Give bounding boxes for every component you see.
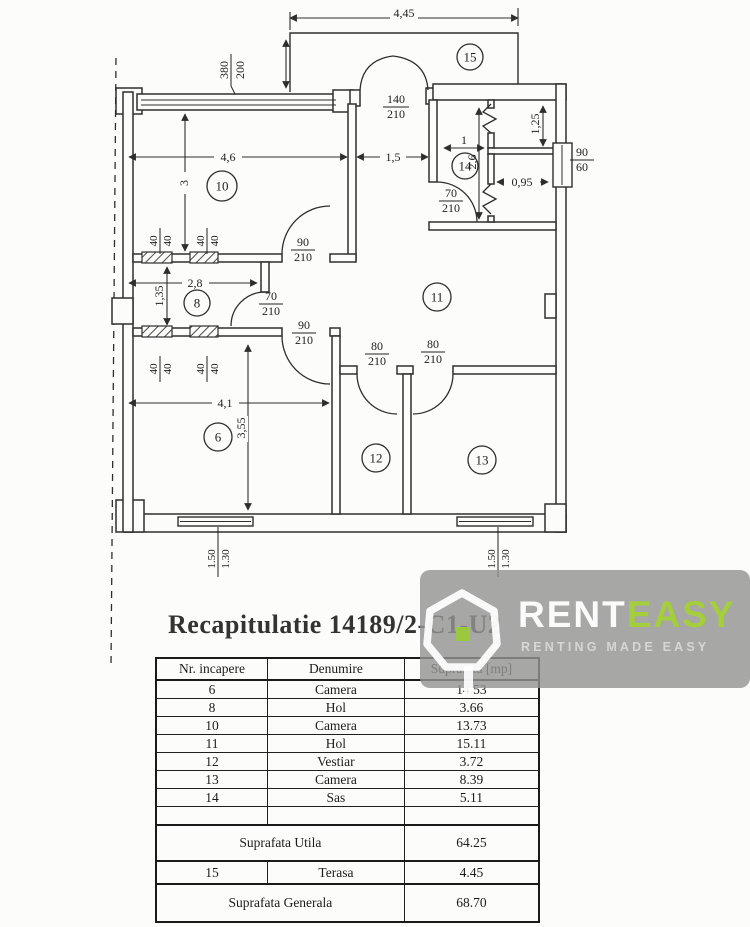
closet-door-zigzag-2 — [483, 184, 496, 214]
room-6: 6 — [215, 430, 222, 445]
cell-nr: 8 — [156, 699, 268, 717]
terasa-nr: 15 — [156, 861, 268, 884]
door14-w: 70 — [445, 186, 457, 200]
room-15: 15 — [464, 50, 477, 65]
badge-tail — [464, 666, 473, 694]
col-label: 40 — [162, 235, 174, 247]
utila-value: 64.25 — [404, 825, 539, 861]
table-row: 14 Sas 5.11 — [156, 789, 539, 807]
door13-w: 80 — [427, 337, 439, 351]
header-denumire: Denumire — [268, 658, 405, 680]
cell-area: 3.72 — [404, 753, 539, 771]
dim-hall-width: 1,5 — [386, 150, 401, 164]
brand-rent: RENT — [518, 594, 627, 635]
terrace-door-w: 140 — [387, 92, 405, 106]
brand-wordmark: RENTEASY — [518, 596, 736, 633]
room-10: 10 — [216, 179, 229, 194]
cell-nr: 13 — [156, 771, 268, 789]
cell-name: Camera — [268, 717, 405, 735]
door13-h: 210 — [424, 352, 442, 366]
col-label: 40 — [148, 235, 160, 247]
cell-name: Hol — [268, 699, 405, 717]
terrace-outline — [290, 33, 518, 92]
dim-room6-depth: 3,55 — [234, 418, 248, 439]
right-window-h: 60 — [576, 160, 588, 174]
door12-h: 210 — [368, 354, 386, 368]
door10-h: 210 — [294, 250, 312, 264]
table-row: 11 Hol 15.11 — [156, 735, 539, 753]
cell-area: 15.11 — [404, 735, 539, 753]
top-window-w: 380 — [217, 61, 231, 79]
wall-niche — [545, 294, 556, 318]
scanned-floorplan-page: 4,45 4,6 1,5 3 1 2,6 1,25 0,95 2,8 1,35 … — [0, 0, 750, 927]
room-12: 12 — [370, 451, 383, 466]
terrace-door-leaf-right — [393, 56, 428, 90]
room-14: 14 — [459, 159, 473, 174]
dim-room8-width: 2,8 — [188, 276, 203, 290]
header-nr: Nr. incapere — [156, 658, 268, 680]
door6-w: 90 — [298, 318, 310, 332]
cell-name: Hol — [268, 735, 405, 753]
dim-room14-width: 1 — [461, 133, 467, 147]
door8-h: 210 — [262, 304, 280, 318]
dim-niche-width: 0,95 — [512, 175, 533, 189]
col-label: 40 — [162, 363, 174, 375]
terasa-row: 15 Terasa 4.45 — [156, 861, 539, 884]
door10-w: 90 — [297, 235, 309, 249]
wall-top-right — [433, 84, 566, 100]
table-row: 12 Vestiar 3.72 — [156, 753, 539, 771]
renteasy-watermark: RENTEASY RENTING MADE EASY — [420, 570, 750, 688]
cell-nr: 10 — [156, 717, 268, 735]
total-generala-row: Suprafata Generala 68.70 — [156, 884, 539, 922]
cell-nr: 11 — [156, 735, 268, 753]
cell-area: 5.11 — [404, 789, 539, 807]
top-window-h: 200 — [233, 61, 247, 79]
door12-w: 80 — [371, 339, 383, 353]
dim-room10-width: 4,6 — [221, 150, 236, 164]
empty-row — [156, 807, 539, 826]
bottom-window2-h: 1.30 — [500, 549, 512, 569]
top-window-band — [137, 94, 340, 110]
door-room8 — [231, 292, 265, 326]
green-dot-icon — [456, 627, 470, 641]
dim-room8-depth: 1,35 — [152, 286, 166, 307]
room-13: 13 — [476, 453, 489, 468]
generala-label: Suprafata Generala — [156, 884, 404, 922]
door8-w: 70 — [265, 289, 277, 303]
table-row: 13 Camera 8.39 — [156, 771, 539, 789]
cell-name: Sas — [268, 789, 405, 807]
door6-h: 210 — [295, 333, 313, 347]
dim-terrace-width: 4,45 — [394, 6, 415, 20]
cell-name: Camera — [268, 680, 405, 699]
bottom-window1-w: 1.50 — [206, 549, 218, 569]
terasa-value: 4.45 — [404, 861, 539, 884]
brand-easy: EASY — [627, 594, 736, 635]
walls — [112, 84, 566, 532]
door-room12 — [357, 374, 397, 414]
room-11: 11 — [431, 290, 444, 305]
terrace-door-h: 210 — [387, 107, 405, 121]
cell-nr: 6 — [156, 680, 268, 699]
dim-room10-depth: 3 — [177, 180, 191, 186]
generala-value: 68.70 — [404, 884, 539, 922]
terasa-name: Terasa — [268, 861, 405, 884]
door14-h: 210 — [442, 201, 460, 215]
utila-label: Suprafata Utila — [156, 825, 404, 861]
brand-tagline: RENTING MADE EASY — [521, 640, 709, 654]
col-label: 40 — [195, 363, 207, 375]
cell-name: Vestiar — [268, 753, 405, 771]
cell-name: Camera — [268, 771, 405, 789]
cell-area: 8.39 — [404, 771, 539, 789]
boundary-dashed-line — [111, 58, 116, 666]
dim-room6-width: 4,1 — [218, 396, 233, 410]
bottom-window1-h: 1.30 — [220, 549, 232, 569]
col-label: 40 — [195, 235, 207, 247]
right-window-w: 90 — [576, 145, 588, 159]
cell-nr: 14 — [156, 789, 268, 807]
col-label: 40 — [209, 235, 221, 247]
door-room13 — [413, 374, 453, 414]
room-8: 8 — [194, 296, 201, 311]
cell-nr: 12 — [156, 753, 268, 771]
col-label: 40 — [209, 363, 221, 375]
bottom-window2-w: 1.50 — [486, 549, 498, 569]
terrace-door-leaf-left — [360, 56, 393, 90]
col-label: 40 — [148, 363, 160, 375]
dim-closet-depth: 1,25 — [528, 114, 542, 135]
total-utila-row: Suprafata Utila 64.25 — [156, 825, 539, 861]
